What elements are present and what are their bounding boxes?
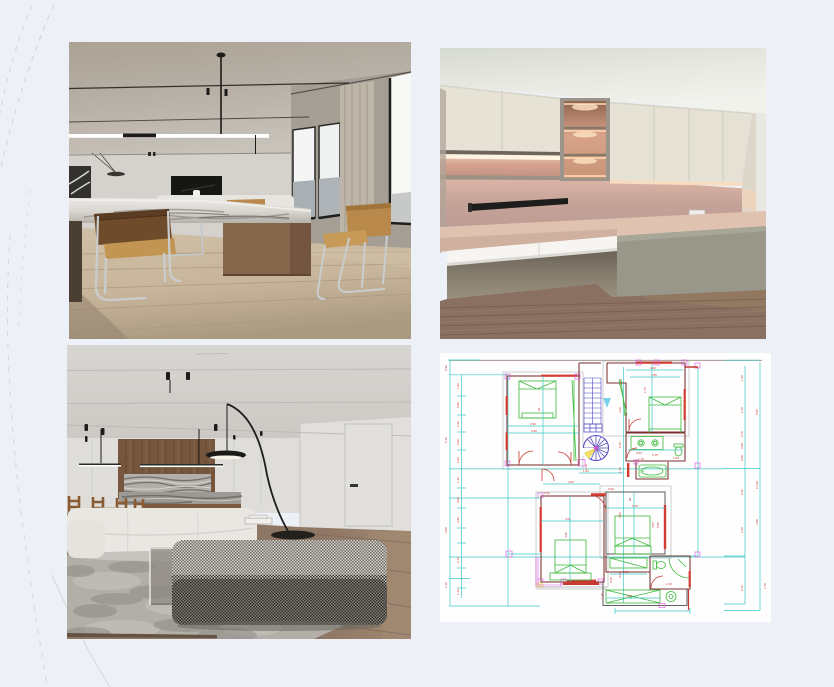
svg-text:90: 90: [628, 497, 632, 501]
svg-text:5.10: 5.10: [444, 437, 448, 443]
svg-text:1.00: 1.00: [456, 383, 460, 389]
svg-text:0.90: 0.90: [444, 365, 448, 371]
svg-text:0.90: 0.90: [740, 455, 744, 461]
svg-text:1.40: 1.40: [444, 582, 448, 588]
svg-text:4.55: 4.55: [618, 512, 622, 518]
svg-text:0.75: 0.75: [740, 431, 744, 437]
svg-text:0.70: 0.70: [618, 442, 622, 448]
svg-text:4.90: 4.90: [755, 519, 759, 525]
svg-text:0.80: 0.80: [456, 402, 460, 408]
svg-text:3.75: 3.75: [652, 453, 658, 457]
svg-text:1.70: 1.70: [638, 457, 644, 461]
svg-text:0.90: 0.90: [740, 443, 744, 449]
svg-text:1.40: 1.40: [600, 593, 604, 599]
svg-text:5.55: 5.55: [656, 522, 660, 528]
svg-text:0.60: 0.60: [609, 577, 613, 583]
svg-text:2.20: 2.20: [740, 527, 744, 533]
svg-text:2.10: 2.10: [740, 407, 744, 413]
svg-text:2.70: 2.70: [763, 583, 767, 589]
svg-text:1.40: 1.40: [456, 477, 460, 483]
svg-text:3.75: 3.75: [632, 504, 638, 508]
svg-text:2.70: 2.70: [643, 387, 647, 393]
svg-text:2.05: 2.05: [626, 594, 632, 598]
svg-text:5.90: 5.90: [755, 409, 759, 415]
svg-text:1.60: 1.60: [740, 375, 744, 381]
svg-text:4.50: 4.50: [530, 422, 536, 426]
svg-text:13.00: 13.00: [755, 481, 759, 489]
svg-text:4.80: 4.80: [456, 517, 460, 523]
svg-text:4.80: 4.80: [444, 527, 448, 533]
svg-text:2.10: 2.10: [666, 582, 672, 586]
svg-text:3.50: 3.50: [636, 451, 642, 455]
svg-text:2.70: 2.70: [740, 585, 744, 591]
svg-text:1.00: 1.00: [456, 457, 460, 463]
svg-text:3.30: 3.30: [618, 407, 622, 413]
svg-text:30: 30: [537, 407, 541, 411]
svg-text:2.70: 2.70: [456, 557, 460, 563]
svg-text:1.90: 1.90: [673, 456, 679, 460]
svg-text:0.80: 0.80: [456, 439, 460, 445]
svg-text:0.80: 0.80: [456, 497, 460, 503]
svg-text:1.50: 1.50: [456, 421, 460, 427]
svg-text:4.55: 4.55: [651, 522, 655, 528]
svg-text:2.10: 2.10: [740, 489, 744, 495]
svg-text:0.60: 0.60: [618, 572, 622, 578]
svg-text:4.00: 4.00: [568, 480, 574, 484]
svg-text:2.95: 2.95: [623, 570, 629, 574]
svg-text:4.20: 4.20: [650, 366, 656, 370]
svg-text:1.30: 1.30: [456, 589, 460, 595]
svg-text:3.95: 3.95: [564, 532, 568, 538]
svg-text:0.90: 0.90: [544, 491, 550, 495]
svg-text:1.00: 1.00: [584, 464, 588, 470]
svg-text:1.40: 1.40: [618, 467, 622, 473]
svg-text:3.90: 3.90: [531, 429, 537, 433]
svg-text:0.90: 0.90: [608, 487, 614, 491]
